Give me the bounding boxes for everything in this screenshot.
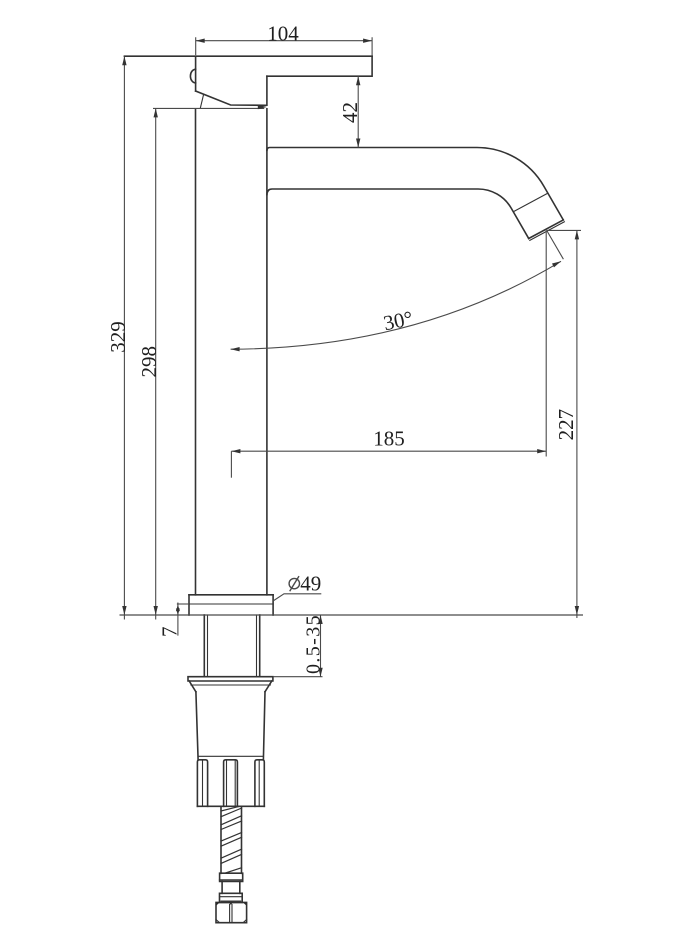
svg-text:227: 227 bbox=[554, 409, 578, 441]
svg-text:298: 298 bbox=[137, 346, 161, 378]
svg-text:329: 329 bbox=[106, 321, 130, 353]
svg-text:49: 49 bbox=[300, 571, 321, 595]
svg-text:7: 7 bbox=[158, 627, 182, 638]
svg-text:185: 185 bbox=[373, 427, 405, 451]
svg-text:104: 104 bbox=[267, 22, 299, 46]
svg-text:0.5-35: 0.5-35 bbox=[302, 614, 324, 674]
svg-text:42: 42 bbox=[338, 102, 362, 123]
